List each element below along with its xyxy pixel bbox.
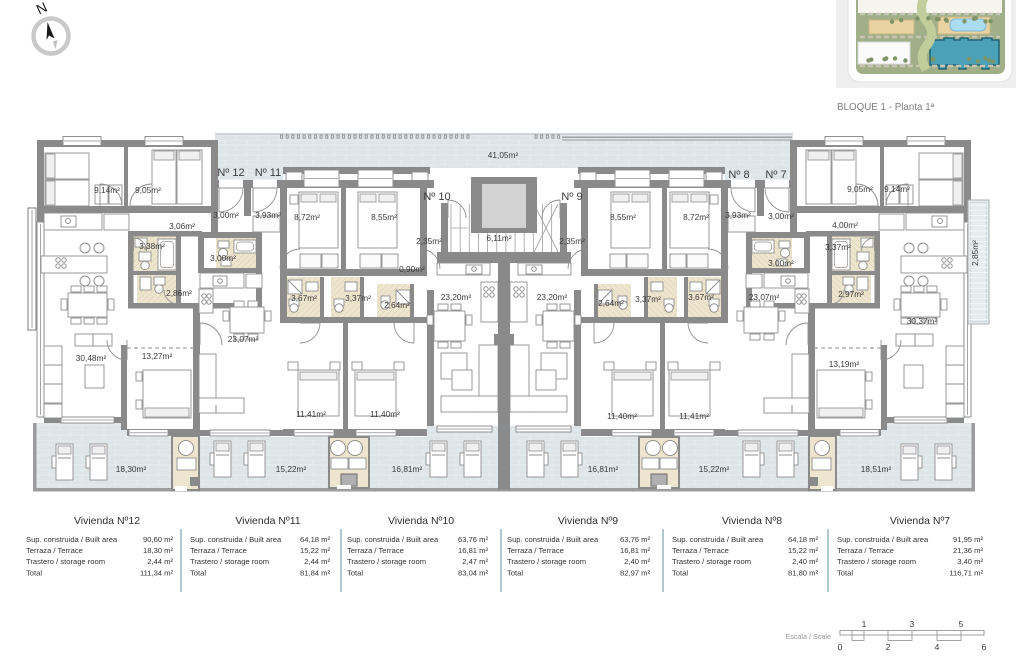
- svg-text:3,37m²: 3,37m²: [825, 242, 851, 252]
- svg-text:8,55m²: 8,55m²: [371, 212, 397, 222]
- svg-text:Trastero / storage room: Trastero / storage room: [26, 557, 105, 566]
- svg-text:9,14m²: 9,14m²: [94, 185, 120, 195]
- svg-text:Sup. construida / Built area: Sup. construida / Built area: [26, 535, 118, 544]
- svg-text:2,97m²: 2,97m²: [838, 289, 864, 299]
- svg-text:Nº 11: Nº 11: [255, 167, 281, 179]
- svg-text:41,05m²: 41,05m²: [488, 150, 519, 160]
- svg-text:3,67m²: 3,67m²: [291, 293, 317, 303]
- svg-text:3,00m²: 3,00m²: [213, 210, 239, 220]
- svg-text:91,95 m²: 91,95 m²: [953, 535, 983, 544]
- svg-text:Vivienda Nº12: Vivienda Nº12: [74, 515, 140, 527]
- svg-text:16,81 m²: 16,81 m²: [620, 546, 650, 555]
- svg-text:Escala / Scale: Escala / Scale: [785, 632, 831, 641]
- svg-text:0: 0: [838, 642, 843, 652]
- svg-text:2,35m²: 2,35m²: [559, 236, 585, 246]
- svg-text:13,27m²: 13,27m²: [142, 351, 173, 361]
- svg-text:4: 4: [935, 642, 940, 652]
- svg-text:Trastero / storage room: Trastero / storage room: [672, 557, 751, 566]
- svg-text:2: 2: [886, 642, 891, 652]
- svg-text:3,37m²: 3,37m²: [635, 294, 661, 304]
- svg-text:15,22 m²: 15,22 m²: [788, 546, 818, 555]
- svg-text:3: 3: [910, 619, 915, 629]
- svg-text:Sup. construida / Built area: Sup. construida / Built area: [672, 535, 764, 544]
- svg-text:3,93m²: 3,93m²: [725, 210, 751, 220]
- svg-text:3,00m²: 3,00m²: [210, 253, 236, 263]
- svg-text:111,34 m²: 111,34 m²: [140, 569, 174, 578]
- svg-text:Trastero / storage room: Trastero / storage room: [190, 557, 269, 566]
- svg-text:Terraza / Terrace: Terraza / Terrace: [507, 546, 564, 555]
- svg-text:21,36 m²: 21,36 m²: [953, 546, 983, 555]
- svg-text:Nº 12: Nº 12: [217, 167, 244, 179]
- svg-text:1: 1: [862, 619, 867, 629]
- svg-text:116,71 m²: 116,71 m²: [949, 569, 983, 578]
- svg-text:9,05m²: 9,05m²: [135, 185, 161, 195]
- svg-text:Total: Total: [190, 569, 206, 578]
- svg-text:8,72m²: 8,72m²: [294, 212, 320, 222]
- svg-text:18,51m²: 18,51m²: [861, 464, 892, 474]
- svg-text:15,22 m²: 15,22 m²: [300, 546, 330, 555]
- svg-text:Terraza / Terrace: Terraza / Terrace: [837, 546, 894, 555]
- svg-text:16,81m²: 16,81m²: [588, 464, 619, 474]
- svg-text:8,55m²: 8,55m²: [610, 212, 636, 222]
- svg-text:16,81m²: 16,81m²: [392, 464, 423, 474]
- svg-text:Terraza / Terrace: Terraza / Terrace: [672, 546, 729, 555]
- svg-text:Trastero / storage room: Trastero / storage room: [347, 557, 426, 566]
- svg-text:2,40 m²: 2,40 m²: [624, 557, 650, 566]
- svg-text:11,40m²: 11,40m²: [607, 411, 637, 421]
- svg-text:8,72m²: 8,72m²: [683, 212, 709, 222]
- svg-text:3,93m²: 3,93m²: [255, 210, 281, 220]
- svg-text:3,40 m²: 3,40 m²: [957, 557, 983, 566]
- svg-text:6,11m²: 6,11m²: [486, 233, 511, 243]
- svg-text:Terraza / Terrace: Terraza / Terrace: [190, 546, 247, 555]
- svg-text:Vivienda Nº8: Vivienda Nº8: [722, 515, 782, 527]
- svg-text:Nº 9: Nº 9: [561, 191, 582, 203]
- svg-text:Terraza / Terrace: Terraza / Terrace: [347, 546, 404, 555]
- svg-text:63,76 m²: 63,76 m²: [620, 535, 650, 544]
- svg-text:90,60 m²: 90,60 m²: [143, 535, 173, 544]
- svg-text:23,07m²: 23,07m²: [228, 334, 259, 344]
- svg-text:82,97 m²: 82,97 m²: [620, 569, 650, 578]
- svg-text:Sup. construida / Built area: Sup. construida / Built area: [190, 535, 282, 544]
- svg-text:18,30 m²: 18,30 m²: [143, 546, 173, 555]
- svg-text:2,85m²: 2,85m²: [970, 240, 980, 266]
- svg-text:BLOQUE 1 - Planta 1ª: BLOQUE 1 - Planta 1ª: [837, 102, 935, 113]
- svg-text:Sup. construida / Built area: Sup. construida / Built area: [507, 535, 599, 544]
- svg-text:Terraza / Terrace: Terraza / Terrace: [26, 546, 83, 555]
- svg-text:2,47 m²: 2,47 m²: [462, 557, 488, 566]
- svg-text:Vivienda Nº9: Vivienda Nº9: [558, 515, 618, 527]
- svg-text:2,86m²: 2,86m²: [166, 288, 192, 298]
- svg-text:11,40m²: 11,40m²: [370, 409, 400, 419]
- svg-text:63,76 m²: 63,76 m²: [458, 535, 488, 544]
- svg-text:30,37m²: 30,37m²: [907, 316, 938, 326]
- svg-text:9,05m²: 9,05m²: [847, 184, 873, 194]
- svg-text:Vivienda Nº7: Vivienda Nº7: [890, 515, 950, 527]
- svg-text:Trastero / storage room: Trastero / storage room: [837, 557, 916, 566]
- svg-text:3,06m²: 3,06m²: [169, 221, 195, 231]
- svg-text:5: 5: [959, 619, 964, 629]
- svg-text:Sup. construida / Built area: Sup. construida / Built area: [837, 535, 929, 544]
- svg-text:16,81 m²: 16,81 m²: [458, 546, 488, 555]
- svg-text:Nº 10: Nº 10: [423, 191, 450, 203]
- svg-text:30,48m²: 30,48m²: [76, 353, 107, 363]
- svg-text:3,00m²: 3,00m²: [768, 211, 794, 221]
- svg-text:81,84 m²: 81,84 m²: [300, 569, 330, 578]
- svg-text:2,35m²: 2,35m²: [416, 236, 442, 246]
- svg-text:15,22m²: 15,22m²: [699, 464, 730, 474]
- svg-text:23,20m²: 23,20m²: [537, 292, 568, 302]
- svg-text:64,18 m²: 64,18 m²: [788, 535, 818, 544]
- svg-text:Total: Total: [347, 569, 363, 578]
- svg-text:9,14m²: 9,14m²: [884, 184, 910, 194]
- svg-text:23,07m²: 23,07m²: [749, 292, 780, 302]
- svg-text:Total: Total: [26, 569, 42, 578]
- svg-text:11,41m²: 11,41m²: [296, 409, 326, 419]
- svg-text:Vivienda Nº10: Vivienda Nº10: [388, 515, 454, 527]
- svg-text:Vivienda Nº11: Vivienda Nº11: [235, 515, 300, 527]
- svg-text:0,90m²: 0,90m²: [399, 264, 425, 274]
- svg-text:Sup. construida / Built area: Sup. construida / Built area: [347, 535, 439, 544]
- svg-text:4,00m²: 4,00m²: [832, 220, 858, 230]
- svg-text:2,40 m²: 2,40 m²: [792, 557, 818, 566]
- svg-text:Trastero / storage room: Trastero / storage room: [507, 557, 586, 566]
- svg-text:Nº 7: Nº 7: [765, 169, 786, 181]
- svg-text:2,44 m²: 2,44 m²: [147, 557, 173, 566]
- svg-text:Nº 8: Nº 8: [728, 169, 749, 181]
- svg-text:11,41m²: 11,41m²: [679, 411, 709, 421]
- svg-text:15,22m²: 15,22m²: [276, 464, 307, 474]
- svg-text:3,67m²: 3,67m²: [688, 292, 714, 302]
- svg-text:Total: Total: [837, 569, 853, 578]
- svg-text:13,19m²: 13,19m²: [829, 359, 860, 369]
- svg-text:2,44 m²: 2,44 m²: [304, 557, 330, 566]
- svg-text:18,30m²: 18,30m²: [116, 464, 147, 474]
- svg-text:2,64m²: 2,64m²: [384, 300, 410, 310]
- svg-text:Total: Total: [672, 569, 688, 578]
- svg-text:3,38m²: 3,38m²: [139, 241, 165, 251]
- svg-text:83,04 m²: 83,04 m²: [458, 569, 488, 578]
- svg-text:2,64m²: 2,64m²: [598, 298, 624, 308]
- svg-text:Total: Total: [507, 569, 523, 578]
- svg-text:81,80 m²: 81,80 m²: [788, 569, 818, 578]
- svg-text:3,00m²: 3,00m²: [768, 258, 794, 268]
- svg-text:3,37m²: 3,37m²: [345, 293, 371, 303]
- svg-text:64,18 m²: 64,18 m²: [300, 535, 330, 544]
- svg-text:6: 6: [982, 642, 987, 652]
- svg-text:23,20m²: 23,20m²: [441, 292, 472, 302]
